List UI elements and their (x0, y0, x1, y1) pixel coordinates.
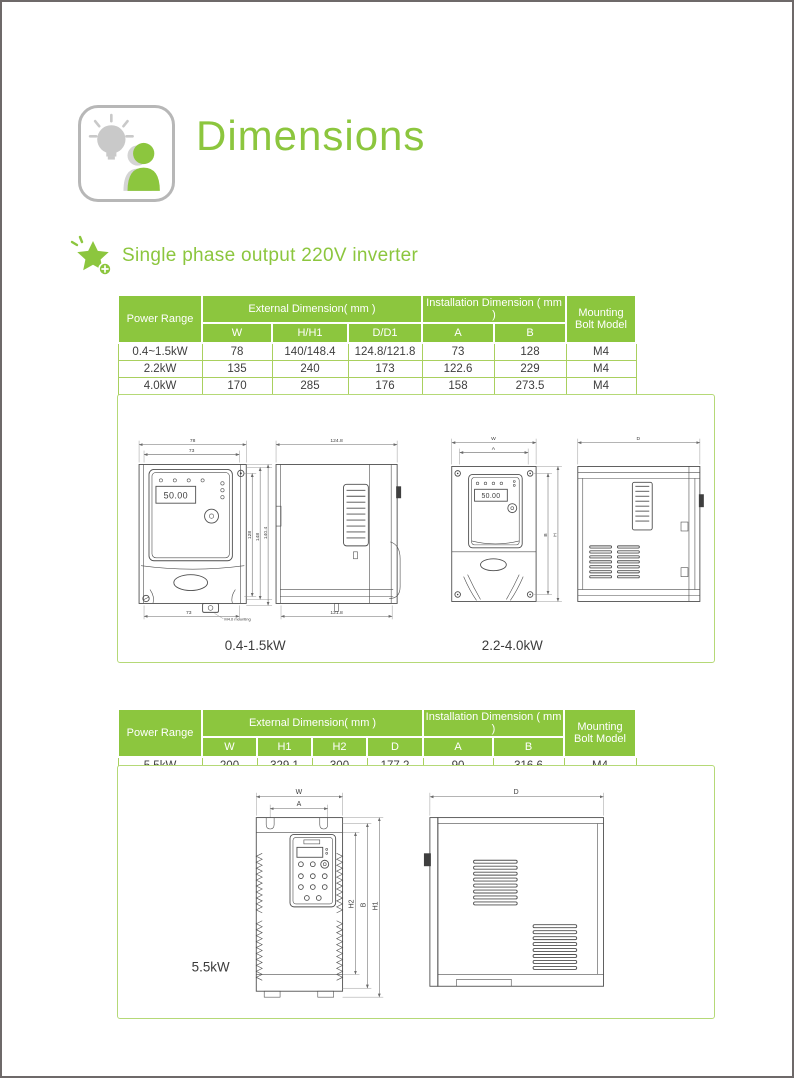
table-cell: M4 (566, 360, 636, 377)
table-cell: 4.0kW (118, 377, 202, 394)
table-cell: 124.8/121.8 (348, 343, 422, 360)
caption-04-15kw: 0.4-1.5kW (225, 638, 286, 653)
column-header-w: W (202, 737, 257, 757)
mounting-header-line2: Bolt Model (565, 733, 635, 745)
column-header-b: B (494, 323, 566, 343)
mounting-header-line1: Mounting (567, 307, 635, 319)
bulb-icon (97, 125, 125, 153)
table-cell: 0.4~1.5kW (118, 343, 202, 360)
front-view-55kw: W A (256, 789, 383, 997)
table-cell: 158 (422, 377, 494, 394)
dim-label: W (491, 436, 496, 442)
table-cell: 135 (202, 360, 272, 377)
section-heading-text: Single phase output 220V inverter (122, 245, 418, 267)
dim-label: D (637, 436, 641, 442)
table-cell: 240 (272, 360, 348, 377)
lightbulb-person-icon (81, 108, 172, 199)
external-dimension-header: External Dimension( mm ) (202, 295, 422, 323)
front-view-04-15kw: 78 73 50.00 (139, 438, 272, 621)
dim-label: 148 (255, 533, 261, 542)
caption-22-40kw: 2.2-4.0kW (482, 638, 543, 653)
column-header-h1: H1 (257, 737, 312, 757)
dim-label: 128 (247, 531, 253, 540)
installation-dimension-header: Installation Dimension ( mm ) (422, 295, 566, 323)
dim-label: 121.8 (330, 610, 343, 616)
column-header-a: A (423, 737, 493, 757)
dim-label: 73 (189, 448, 195, 454)
caption-55kw: 5.5kW (192, 959, 230, 974)
drawing-box-small-models: 78 73 50.00 (117, 394, 715, 663)
mounting-bolt-header: Mounting Bolt Model (564, 709, 636, 757)
section-heading-row: Single phase output 220V inverter (68, 235, 418, 277)
power-range-header: Power Range (118, 295, 202, 343)
dim-label: W (296, 789, 303, 796)
dim-label: 140.4 (263, 527, 269, 540)
table-cell: 2.2kW (118, 360, 202, 377)
table-row: 4.0kW 170 285 176 158 273.5 M4 (118, 377, 636, 394)
dim-label: B (360, 902, 367, 907)
page-title: Dimensions (196, 112, 425, 160)
side-view-22-40kw: D (578, 436, 704, 601)
table-cell: 273.5 (494, 377, 566, 394)
dim-label: H (553, 533, 559, 537)
table-row: 2.2kW 135 240 173 122.6 229 M4 (118, 360, 636, 377)
power-range-header: Power Range (118, 709, 202, 757)
column-header-w: W (202, 323, 272, 343)
table-header-row: Power Range External Dimension( mm ) Ins… (118, 709, 636, 737)
mounting-note: M4.0 mounting (224, 616, 250, 621)
mounting-bolt-header: Mounting Bolt Model (566, 295, 636, 343)
table-cell: 73 (422, 343, 494, 360)
table-cell: M4 (566, 343, 636, 360)
front-view-22-40kw: W A 50.00 (452, 436, 562, 601)
column-header-d: D/D1 (348, 323, 422, 343)
display-value: 50.00 (482, 493, 501, 500)
table-cell: 128 (494, 343, 566, 360)
column-header-h: H/H1 (272, 323, 348, 343)
table-cell: 122.6 (422, 360, 494, 377)
mounting-header-line1: Mounting (565, 721, 635, 733)
table-cell: 140/148.4 (272, 343, 348, 360)
table-cell: M4 (566, 377, 636, 394)
catalog-page: Dimensions Single phase output 220V inve… (0, 0, 794, 1078)
column-header-a: A (422, 323, 494, 343)
dim-label: H2 (348, 899, 355, 908)
display-value: 50.00 (164, 491, 188, 501)
side-view-55kw: D (424, 789, 604, 986)
drawing-box-55kw: W A (117, 765, 715, 1019)
table-cell: 78 (202, 343, 272, 360)
dim-label: D (514, 789, 519, 796)
table-cell: 173 (348, 360, 422, 377)
table-row: 0.4~1.5kW 78 140/148.4 124.8/121.8 73 12… (118, 343, 636, 360)
dim-label: 73 (186, 610, 192, 616)
dim-label: 78 (190, 438, 196, 444)
column-header-b: B (493, 737, 564, 757)
table-header-row: Power Range External Dimension( mm ) Ins… (118, 295, 636, 323)
dim-label: A (297, 801, 302, 808)
dim-label: 124.8 (330, 438, 343, 444)
table-cell: 176 (348, 377, 422, 394)
column-header-h2: H2 (312, 737, 367, 757)
side-view-04-15kw: 124.8 (276, 438, 401, 619)
table-cell: 170 (202, 377, 272, 394)
dimension-table-single-phase: Power Range External Dimension( mm ) Ins… (117, 294, 637, 395)
mounting-header-line2: Bolt Model (567, 319, 635, 331)
table-cell: 285 (272, 377, 348, 394)
brand-icon-box (78, 105, 175, 202)
external-dimension-header: External Dimension( mm ) (202, 709, 423, 737)
table-cell: 229 (494, 360, 566, 377)
dim-label: A (492, 446, 496, 452)
column-header-d: D (367, 737, 423, 757)
dim-label: H1 (372, 901, 379, 910)
star-plus-icon (68, 235, 114, 277)
installation-dimension-header: Installation Dimension ( mm ) (423, 709, 564, 737)
